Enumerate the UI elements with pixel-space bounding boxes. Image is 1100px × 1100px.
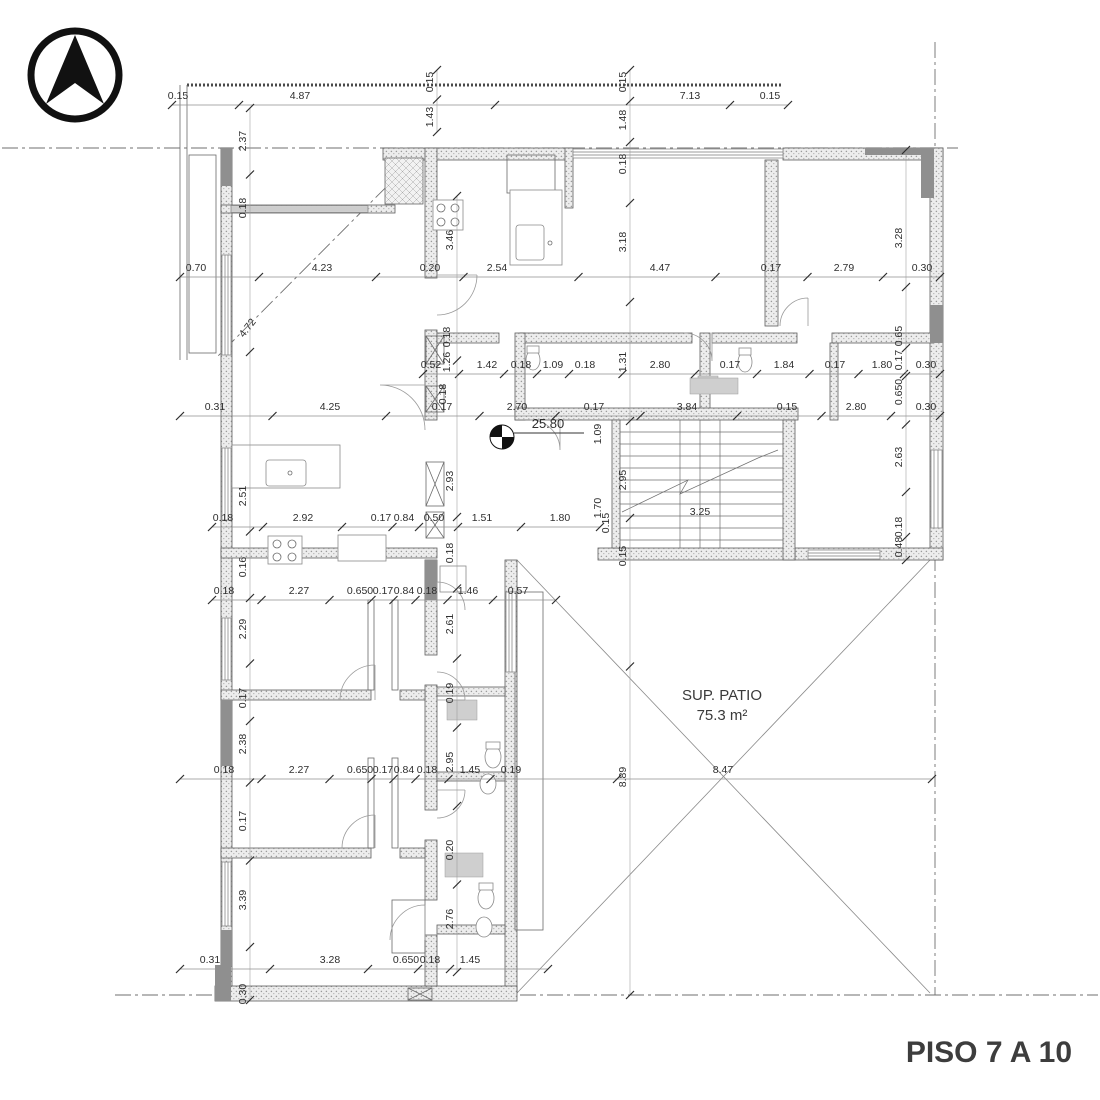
- dimension-label: 4.72: [237, 316, 259, 340]
- dimension-label: 2.79: [834, 262, 855, 274]
- floor-plan-sheet: 0.154.877.130.150.704.230.202.544.470.17…: [0, 0, 1100, 1100]
- dimension-label: 0.84: [394, 512, 415, 524]
- dimension-label: 0.650: [347, 764, 373, 776]
- plan-title: PISO 7 A 10: [906, 1036, 1072, 1069]
- dimension-label: 0.18: [437, 384, 449, 405]
- dimension-label: 2.61: [444, 614, 456, 635]
- dimension-label: 0.18: [575, 359, 596, 371]
- dimension-label: 1.80: [550, 512, 571, 524]
- dimension-label: 2.95: [617, 470, 629, 491]
- stove2-icon: [268, 536, 302, 564]
- dimension-label: 7.13: [680, 90, 701, 102]
- dimension-label: 4.47: [650, 262, 671, 274]
- dimension-label: 0.18: [417, 764, 438, 776]
- dimension-label: 0.19: [444, 683, 456, 704]
- dimension-label: 2.37: [237, 131, 249, 152]
- dimension-label: 2.54: [487, 262, 508, 274]
- dimension-label: 2.63: [893, 447, 905, 468]
- dimension-label: 0.84: [394, 585, 415, 597]
- dimension-label: 0.19: [501, 764, 522, 776]
- fixtures: [232, 190, 752, 937]
- dimension-label: 0.84: [394, 764, 415, 776]
- dimension-label: 2.29: [237, 619, 249, 640]
- dimension-label: 0.17: [371, 512, 392, 524]
- dimension-label: 1.48: [617, 110, 629, 131]
- doors: [340, 275, 808, 940]
- dimension-label: 4.23: [312, 262, 333, 274]
- dimension-label: 3.84: [677, 401, 698, 413]
- benchmark-value: 25.80: [532, 416, 565, 431]
- counter: [338, 535, 386, 561]
- dimension-label: 1.51: [472, 512, 493, 524]
- dimension-label: 2.92: [293, 512, 314, 524]
- dimension-label: 0.50: [424, 512, 445, 524]
- staircase: [620, 420, 783, 548]
- dimension-label: 0.18: [441, 327, 453, 348]
- dimension-label: 0.31: [200, 954, 221, 966]
- patio-diagonals: [517, 560, 930, 993]
- dimension-label: 0.15: [168, 90, 189, 102]
- dimension-label: 2.80: [846, 401, 867, 413]
- dimension-label: 3.18: [617, 232, 629, 253]
- dimension-label: 0.18: [237, 198, 249, 219]
- dimension-label: 1.80: [872, 359, 893, 371]
- dimension-label: 8.47: [713, 764, 734, 776]
- dimension-label: 1.45: [460, 764, 481, 776]
- dimension-label: 0.20: [420, 262, 441, 274]
- dimension-label: 1.42: [477, 359, 498, 371]
- dimension-label: 0.20: [444, 840, 456, 861]
- dimension-label: 0.65: [893, 326, 905, 347]
- dimension-label: 0.17: [893, 350, 905, 371]
- dimension-label: 3.28: [320, 954, 341, 966]
- dimension-label: 0.17: [825, 359, 846, 371]
- dimension-label: 0.17: [584, 401, 605, 413]
- dimension-label: 0.30: [916, 359, 937, 371]
- dimension-label: 0.31: [205, 401, 226, 413]
- dimension-label: 1.09: [543, 359, 564, 371]
- dimension-label: 0.18: [617, 154, 629, 175]
- dimension-label: 1.26: [441, 352, 453, 373]
- patio-label: SUP. PATIO: [682, 687, 762, 704]
- dimension-label: 0.15: [617, 72, 629, 93]
- dimension-label: 0.17: [237, 811, 249, 832]
- dimension-label: 0.650: [893, 379, 905, 405]
- vanity: [690, 378, 738, 394]
- stove-icon: [433, 200, 463, 230]
- dimension-label: 0.15: [760, 90, 781, 102]
- dimension-label: 0.15: [777, 401, 798, 413]
- dimension-label: 0.57: [508, 585, 529, 597]
- dimension-label: 2.27: [289, 764, 310, 776]
- toilet-icon: [478, 883, 494, 909]
- dimension-label: 0.18: [214, 585, 235, 597]
- dimension-label: 2.76: [444, 909, 456, 930]
- dimension-label: 0.15: [424, 72, 436, 93]
- dimension-label: 1.43: [424, 107, 436, 128]
- dimension-label: 0.18: [420, 954, 441, 966]
- dimension-label: 0.30: [912, 262, 933, 274]
- dimension-label: 1.31: [617, 352, 629, 373]
- dimension-label: 0.650: [393, 954, 419, 966]
- dimension-label: 0.52: [421, 359, 442, 371]
- dimension-label: 2.80: [650, 359, 671, 371]
- dimension-label: 0.18: [511, 359, 532, 371]
- dimension-label: 0.70: [186, 262, 207, 274]
- dimension-label: 0.18: [444, 543, 456, 564]
- bidet-icon: [476, 917, 492, 937]
- dimension-label: 0.30: [916, 401, 937, 413]
- dimension-label: 8.89: [617, 767, 629, 788]
- dimension-label: 2.38: [237, 734, 249, 755]
- dimension-label: 3.46: [444, 230, 456, 251]
- dimension-label: 0.18: [214, 764, 235, 776]
- dimension-label: 1.46: [458, 585, 479, 597]
- dimension-label: 1.45: [460, 954, 481, 966]
- dimension-label: 0.30: [237, 984, 249, 1005]
- dimension-label: 0.17: [373, 764, 394, 776]
- bidet-icon: [480, 774, 496, 794]
- dimension-label: 0.17: [373, 585, 394, 597]
- dimension-label: 1.84: [774, 359, 795, 371]
- dimension-label: 0.15: [617, 546, 629, 567]
- floor-plan-drawing: 0.154.877.130.150.704.230.202.544.470.17…: [0, 0, 1100, 1100]
- dimension-label: 0.48: [893, 537, 905, 558]
- dimension-label: 4.87: [290, 90, 311, 102]
- dimension-label: 0.17: [237, 688, 249, 709]
- dimension-label: 0.17: [761, 262, 782, 274]
- dimension-label: 2.51: [237, 486, 249, 507]
- dimension-label: 2.93: [444, 471, 456, 492]
- north-arrow-icon: [31, 31, 119, 119]
- dimension-label: 0.15: [600, 513, 612, 534]
- patio-area: 75.3 m²: [697, 707, 748, 724]
- dimension-label: 2.27: [289, 585, 310, 597]
- dimension-label: 3.39: [237, 890, 249, 911]
- dimension-label: 0.18: [893, 517, 905, 538]
- dimension-label: 2.70: [507, 401, 528, 413]
- dimension-label: 0.17: [720, 359, 741, 371]
- toilet-icon: [485, 742, 501, 768]
- dimension-label: 0.18: [417, 585, 438, 597]
- dimension-label: 0.18: [213, 512, 234, 524]
- dimension-label: 4.25: [320, 401, 341, 413]
- dimension-label: 3.25: [690, 506, 711, 518]
- dimension-label: 2.95: [444, 752, 456, 773]
- dimension-label: 0.16: [237, 557, 249, 578]
- dimension-label: 3.28: [893, 228, 905, 249]
- dimension-label: 1.09: [592, 424, 604, 445]
- kitchen-sink-icon: [510, 190, 562, 265]
- island-sink-icon: [232, 445, 340, 488]
- dimension-label: 0.650: [347, 585, 373, 597]
